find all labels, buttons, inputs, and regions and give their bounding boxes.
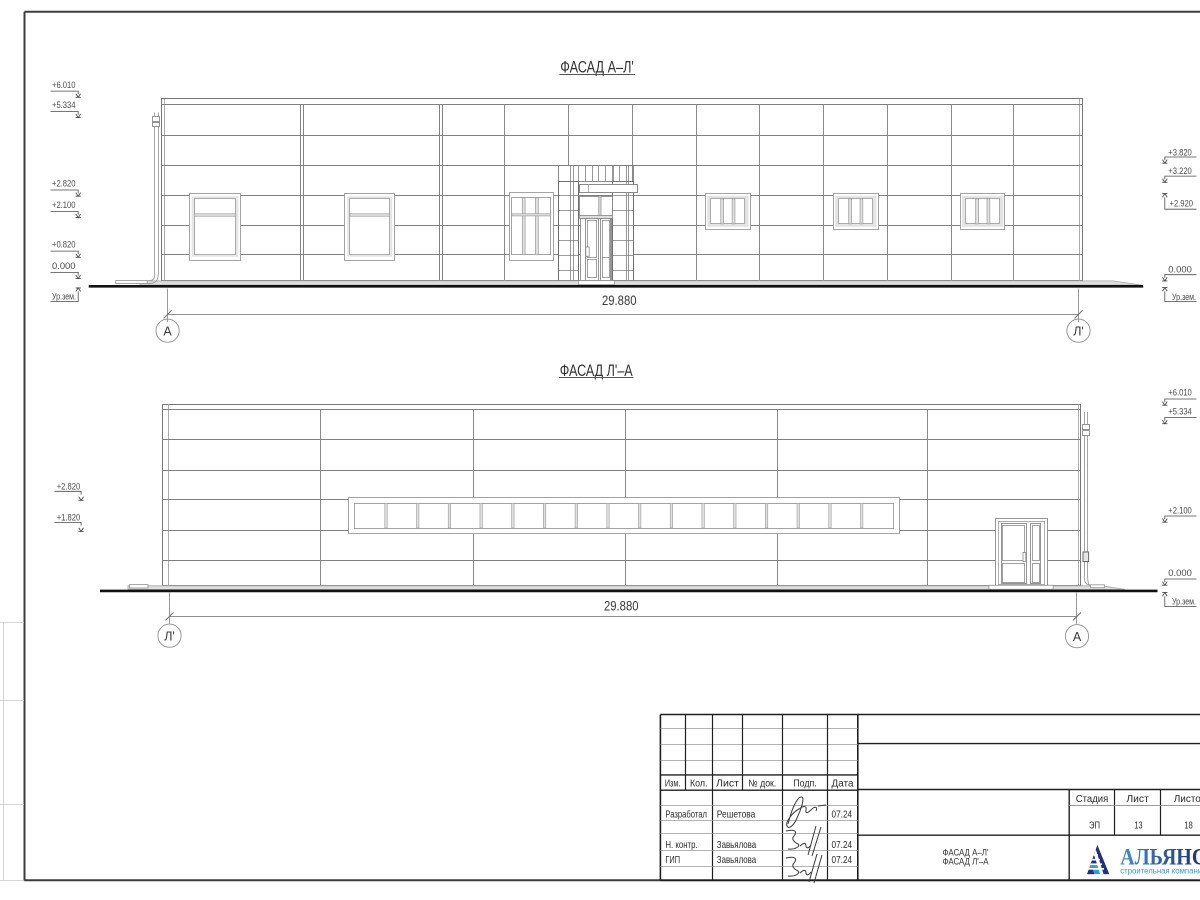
svg-text:+5.334: +5.334 [1168, 407, 1192, 418]
svg-text:07.24: 07.24 [832, 854, 853, 866]
svg-text:13: 13 [1135, 820, 1143, 832]
svg-text:А: А [1073, 630, 1082, 644]
svg-text:Кол.: Кол. [690, 779, 708, 790]
svg-text:Стадия: Стадия [1076, 794, 1109, 805]
svg-text:Листов: Листов [1174, 794, 1200, 805]
svg-text:07.24: 07.24 [832, 809, 853, 821]
svg-text:Лист: Лист [716, 779, 739, 790]
svg-text:+6.010: +6.010 [1168, 387, 1192, 398]
svg-text:0.000: 0.000 [1168, 568, 1192, 579]
svg-text:Решетова: Решетова [717, 809, 756, 821]
svg-text:29.880: 29.880 [602, 292, 637, 308]
svg-text:+3.220: +3.220 [1168, 166, 1192, 177]
svg-text:Подп.: Подп. [793, 779, 817, 790]
svg-text:Завьялова: Завьялова [717, 854, 757, 866]
svg-text:07.24: 07.24 [832, 839, 853, 851]
svg-text:№ док.: № док. [748, 779, 776, 790]
svg-text:А: А [163, 324, 172, 338]
svg-text:ГИП: ГИП [665, 854, 680, 866]
svg-text:Разработал: Разработал [665, 809, 707, 821]
svg-text:+2.100: +2.100 [52, 200, 76, 211]
svg-text:ФАСАД Л'–А: ФАСАД Л'–А [943, 857, 990, 868]
svg-text:Л': Л' [1073, 324, 1084, 338]
svg-text:Лист: Лист [1126, 794, 1149, 805]
svg-text:строительная компания: строительная компания [1120, 867, 1200, 876]
svg-text:Завьялова: Завьялова [717, 839, 757, 851]
svg-text:+5.334: +5.334 [52, 100, 76, 111]
svg-text:+6.010: +6.010 [52, 80, 76, 91]
svg-text:ФАСАД А–Л': ФАСАД А–Л' [560, 58, 634, 77]
svg-text:0.000: 0.000 [1168, 265, 1192, 276]
svg-text:+2.920: +2.920 [1170, 199, 1194, 210]
svg-text:+2.100: +2.100 [1168, 505, 1192, 516]
svg-text:18: 18 [1184, 820, 1193, 832]
svg-text:+0.820: +0.820 [52, 240, 76, 251]
svg-text:Н. контр.: Н. контр. [665, 839, 697, 851]
svg-text:Ур.зем.: Ур.зем. [52, 292, 76, 302]
svg-text:ЭП: ЭП [1089, 820, 1100, 832]
svg-text:Ур.зем.: Ур.зем. [1172, 292, 1196, 302]
svg-text:+2.820: +2.820 [52, 178, 76, 189]
svg-text:Л': Л' [164, 629, 175, 643]
svg-text:Дата: Дата [832, 779, 854, 790]
svg-text:0.000: 0.000 [52, 261, 76, 272]
svg-text:Ур.зем.: Ур.зем. [1172, 597, 1196, 607]
svg-text:29.880: 29.880 [604, 598, 639, 614]
svg-text:Изм.: Изм. [665, 779, 681, 790]
